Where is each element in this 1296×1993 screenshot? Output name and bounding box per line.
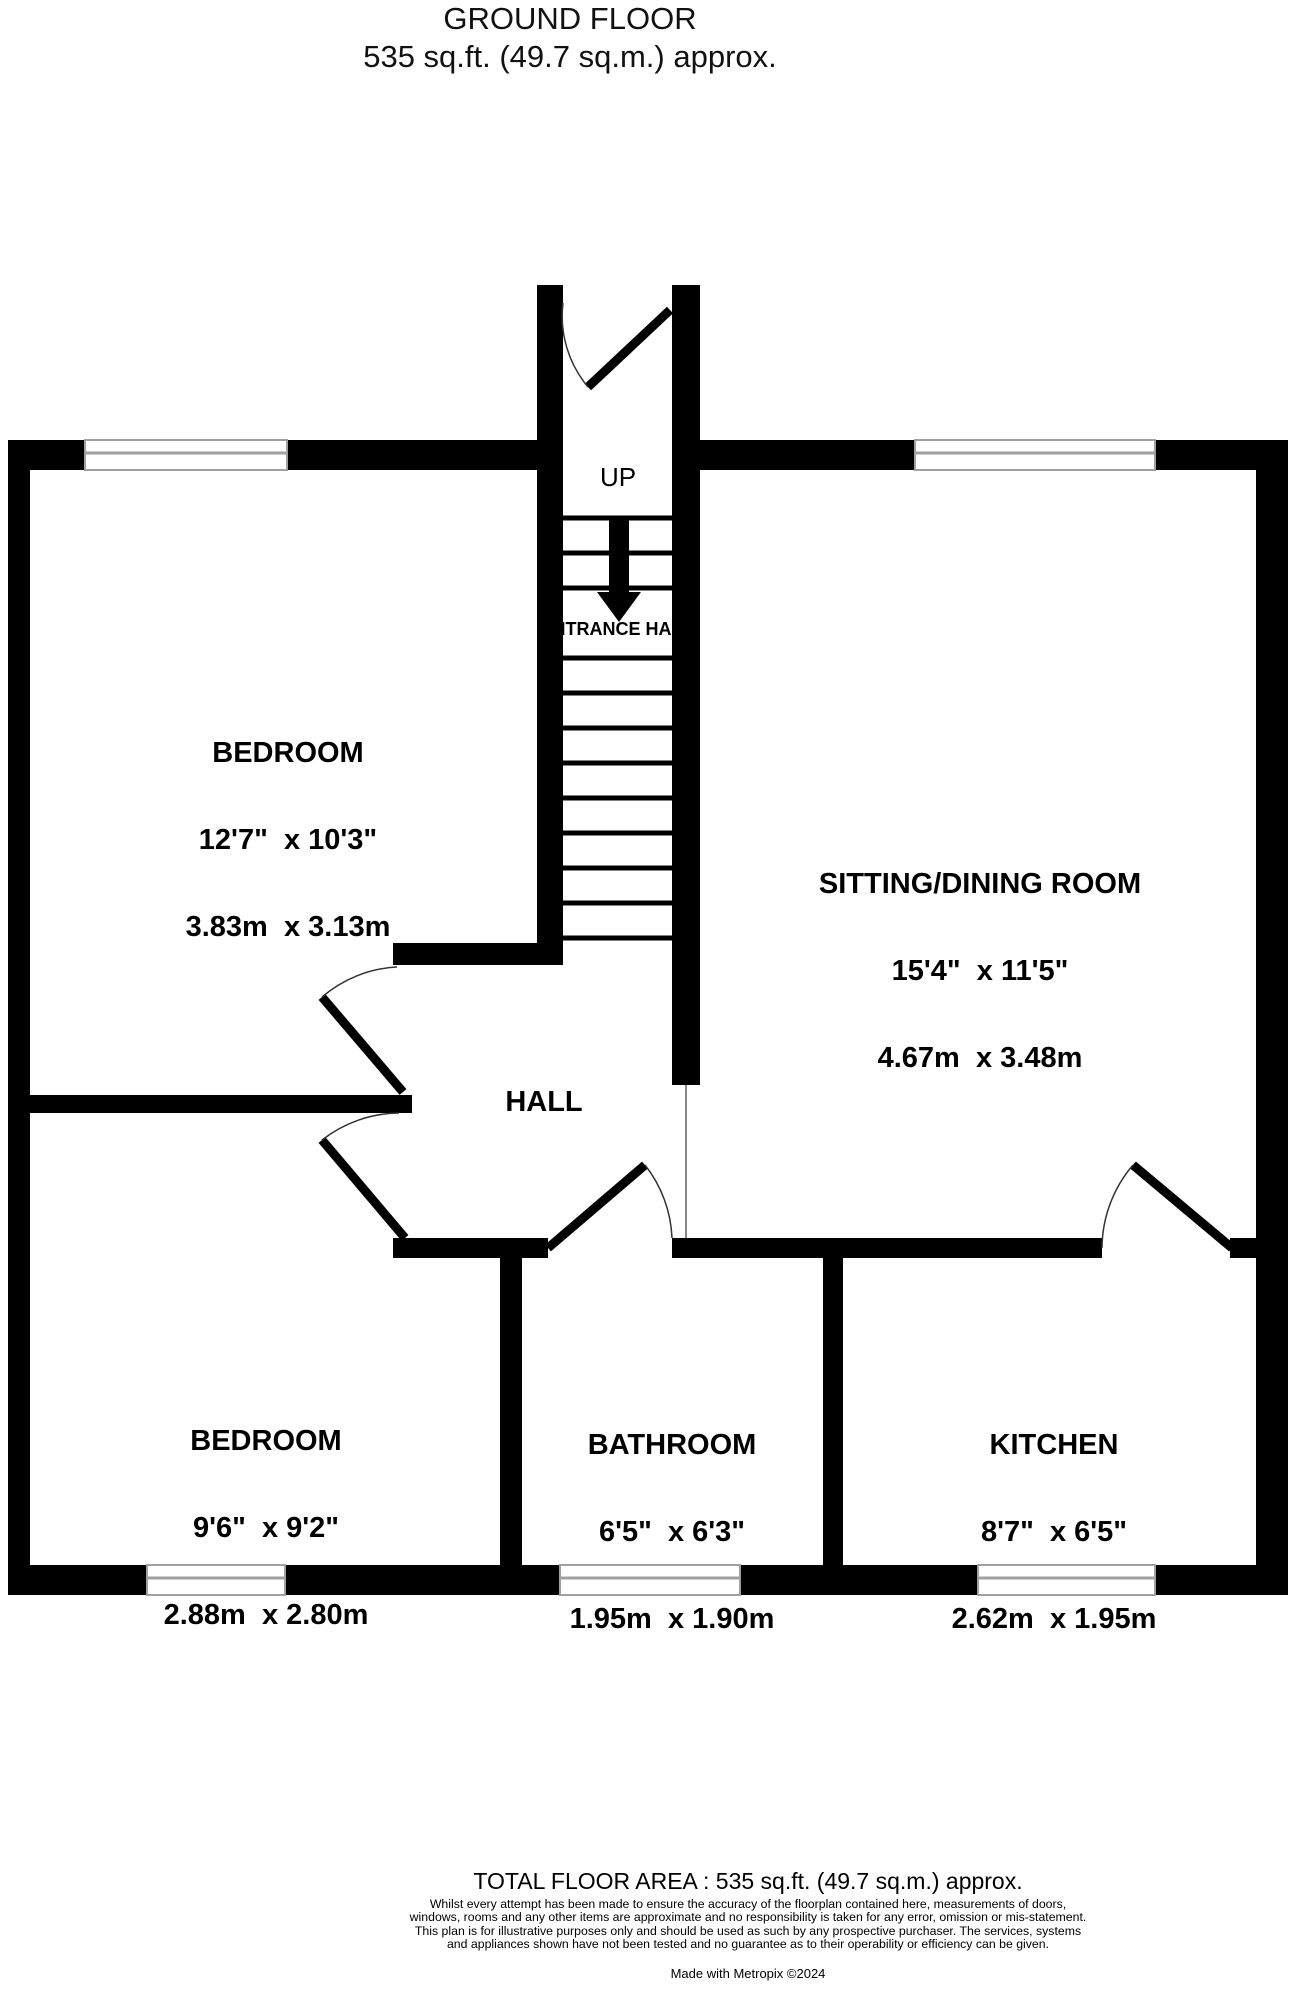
wall-hall-kitchen-mid <box>672 1238 1102 1258</box>
bathroom-name: BATHROOM <box>570 1431 775 1460</box>
plan-title-block: GROUND FLOOR 535 sq.ft. (49.7 sq.m.) app… <box>120 0 1020 76</box>
sitting-dining-metric: 4.67m x 3.48m <box>819 1044 1141 1073</box>
bedroom1-imperial: 12'7" x 10'3" <box>186 826 391 855</box>
wall-bedroom1-hall <box>8 1095 412 1113</box>
bathroom-imperial: 6'5" x 6'3" <box>570 1518 775 1547</box>
door-kitchen-arc <box>1102 1165 1133 1248</box>
bedroom1-label: BEDROOM 12'7" x 10'3" 3.83m x 3.13m <box>186 681 391 1000</box>
floorplan-page: GROUND FLOOR 535 sq.ft. (49.7 sq.m.) app… <box>0 0 1296 1993</box>
stairs-direction-arrow <box>597 518 641 622</box>
plan-subtitle: 535 sq.ft. (49.7 sq.m.) approx. <box>120 38 1020 76</box>
kitchen-metric: 2.62m x 1.95m <box>952 1605 1157 1634</box>
wall-left <box>8 440 30 1595</box>
sitting-dining-name: SITTING/DINING ROOM <box>819 870 1141 899</box>
stairs-up-label: UP <box>600 464 636 490</box>
door-entrance-leaf <box>588 310 670 387</box>
door-entrance-arc <box>562 303 588 387</box>
wall-hall-bathroom-left <box>393 1238 548 1258</box>
bedroom2-name: BEDROOM <box>164 1427 369 1456</box>
sitting-dining-label: SITTING/DINING ROOM 15'4" x 11'5" 4.67m … <box>819 812 1141 1131</box>
bedroom2-metric: 2.88m x 2.80m <box>164 1601 369 1630</box>
bedroom1-metric: 3.83m x 3.13m <box>186 913 391 942</box>
kitchen-name: KITCHEN <box>952 1431 1157 1460</box>
door-bathroom-arc <box>645 1165 672 1238</box>
entrance-hall-label: ENTRANCE HALL <box>541 620 694 638</box>
door-bedroom2-leaf <box>322 1140 405 1238</box>
door-bedroom1-leaf <box>322 997 403 1092</box>
kitchen-imperial: 8'7" x 6'5" <box>952 1518 1157 1547</box>
wall-stair-bottom <box>393 943 563 965</box>
bedroom2-imperial: 9'6" x 9'2" <box>164 1514 369 1543</box>
bedroom2-label: BEDROOM 9'6" x 9'2" 2.88m x 2.80m <box>164 1369 369 1688</box>
kitchen-label: KITCHEN 8'7" x 6'5" 2.62m x 1.95m <box>952 1373 1157 1692</box>
window-sitting-top <box>915 440 1155 470</box>
bathroom-metric: 1.95m x 1.90m <box>570 1605 775 1634</box>
bedroom1-name: BEDROOM <box>186 739 391 768</box>
door-bedroom2-arc <box>322 1113 399 1140</box>
door-bathroom-leaf <box>548 1165 645 1248</box>
total-floor-area: TOTAL FLOOR AREA : 535 sq.ft. (49.7 sq.m… <box>473 1868 1022 1894</box>
bathroom-label: BATHROOM 6'5" x 6'3" 1.95m x 1.90m <box>570 1373 775 1692</box>
wall-kitchen-right-stub <box>1230 1238 1256 1258</box>
metropix-credit: Made with Metropix ©2024 <box>671 1967 826 1981</box>
sitting-dining-imperial: 15'4" x 11'5" <box>819 957 1141 986</box>
wall-bathroom-kitchen <box>823 1258 843 1565</box>
plan-title: GROUND FLOOR <box>120 0 1020 38</box>
wall-bedroom2-bathroom <box>500 1258 522 1565</box>
wall-stair-right <box>672 285 700 1085</box>
door-kitchen-leaf <box>1133 1165 1232 1248</box>
hall-label: HALL <box>505 1088 582 1117</box>
wall-right <box>1256 440 1288 1595</box>
disclaimer-text: Whilst every attempt has been made to en… <box>403 1898 1093 1952</box>
window-bedroom1-top <box>85 440 287 470</box>
